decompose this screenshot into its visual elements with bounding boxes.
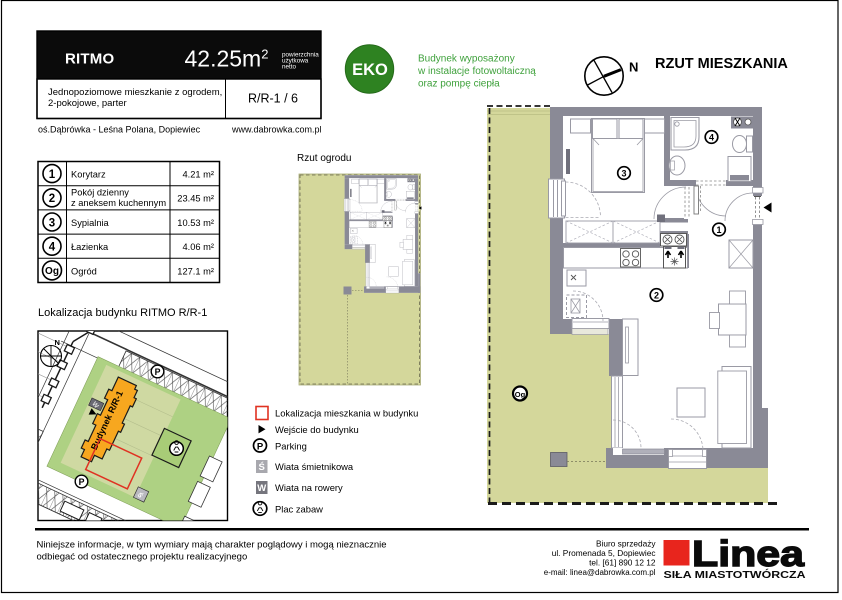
- svg-text:oś.Dąbrówka - Leśna Polana, Do: oś.Dąbrówka - Leśna Polana, Dopiewiec: [38, 125, 201, 135]
- svg-text:RZUT MIESZKANIA: RZUT MIESZKANIA: [655, 56, 788, 72]
- svg-text:Wejście do budynku: Wejście do budynku: [275, 424, 359, 435]
- svg-text:Plac zabaw: Plac zabaw: [275, 504, 323, 515]
- svg-text:3: 3: [621, 168, 626, 178]
- svg-text:netto: netto: [282, 64, 297, 71]
- svg-text:W: W: [257, 483, 266, 494]
- svg-text:www.dabrowka.com.pl: www.dabrowka.com.pl: [231, 125, 322, 135]
- svg-text:Rzut ogrodu: Rzut ogrodu: [297, 153, 351, 164]
- svg-text:2-pokojowe, parter: 2-pokojowe, parter: [48, 98, 127, 109]
- svg-text:Biuro sprzedaży: Biuro sprzedaży: [596, 538, 656, 548]
- svg-text:Wiata śmietnikowa: Wiata śmietnikowa: [275, 461, 354, 472]
- svg-text:Korytarz: Korytarz: [71, 170, 106, 180]
- svg-text:127.1 m²: 127.1 m²: [177, 266, 214, 276]
- svg-text:RITMO: RITMO: [65, 51, 114, 68]
- svg-text:1: 1: [49, 169, 56, 181]
- svg-text:4: 4: [49, 242, 56, 254]
- svg-text:10.53 m²: 10.53 m²: [177, 218, 214, 228]
- svg-text:4.21 m²: 4.21 m²: [182, 170, 214, 180]
- svg-text:Parking: Parking: [275, 441, 307, 452]
- svg-text:Budynek wyposażony: Budynek wyposażony: [418, 54, 515, 65]
- svg-text:Wiata na rowery: Wiata na rowery: [275, 482, 343, 493]
- svg-text:SIŁA MIASTOTWÓRCZA: SIŁA MIASTOTWÓRCZA: [664, 568, 806, 581]
- svg-text:Jednopoziomowe mieszkanie z og: Jednopoziomowe mieszkanie z ogrodem,: [48, 87, 222, 98]
- svg-text:42.25m2: 42.25m2: [185, 46, 269, 72]
- svg-text:R/R-1 / 6: R/R-1 / 6: [248, 92, 298, 106]
- svg-text:Lokalizacja mieszkania w budyn: Lokalizacja mieszkania w budynku: [275, 408, 418, 419]
- svg-text:z aneksem kuchennym: z aneksem kuchennym: [71, 198, 166, 208]
- svg-text:4: 4: [709, 132, 714, 142]
- svg-text:P: P: [79, 477, 85, 487]
- svg-text:1: 1: [716, 225, 721, 235]
- svg-text:Lokalizacja budynku RITMO R/R-: Lokalizacja budynku RITMO R/R-1: [38, 307, 207, 319]
- svg-text:ul. Promenada 5, Dopiewiec: ul. Promenada 5, Dopiewiec: [552, 548, 656, 558]
- svg-text:Niniejsze informacje, w tym wy: Niniejsze informacje, w tym wymiary mają…: [37, 539, 387, 550]
- svg-text:Og: Og: [45, 266, 59, 277]
- svg-text:2: 2: [49, 193, 55, 205]
- svg-text:23.45 m²: 23.45 m²: [177, 194, 214, 204]
- svg-text:2: 2: [654, 290, 659, 300]
- svg-text:odbiegać od ostatecznego proje: odbiegać od ostatecznego projektu realiz…: [37, 551, 248, 562]
- svg-text:EKO: EKO: [352, 61, 388, 79]
- svg-text:Łazienka: Łazienka: [71, 242, 109, 252]
- svg-text:Ś: Ś: [259, 461, 265, 473]
- svg-text:P: P: [155, 367, 161, 377]
- svg-text:P: P: [257, 442, 264, 453]
- svg-text:Ogród: Ogród: [71, 266, 97, 276]
- svg-text:Sypialnia: Sypialnia: [71, 218, 110, 228]
- svg-text:Pokój dzienny: Pokój dzienny: [71, 188, 129, 198]
- svg-text:w instalacje fotowoltaiczną: w instalacje fotowoltaiczną: [417, 66, 536, 77]
- svg-text:3: 3: [49, 217, 55, 229]
- svg-text:e-mail: linea@dabrowka.com.pl: e-mail: linea@dabrowka.com.pl: [544, 568, 656, 577]
- svg-text:Linea: Linea: [692, 533, 805, 574]
- svg-text:oraz pompę ciepła: oraz pompę ciepła: [418, 79, 500, 90]
- svg-text:N: N: [629, 60, 638, 75]
- svg-text:N: N: [55, 338, 60, 347]
- svg-text:tel. [61] 890 12 12: tel. [61] 890 12 12: [589, 557, 656, 567]
- svg-text:4.06 m²: 4.06 m²: [182, 242, 214, 252]
- svg-text:Og: Og: [515, 390, 526, 399]
